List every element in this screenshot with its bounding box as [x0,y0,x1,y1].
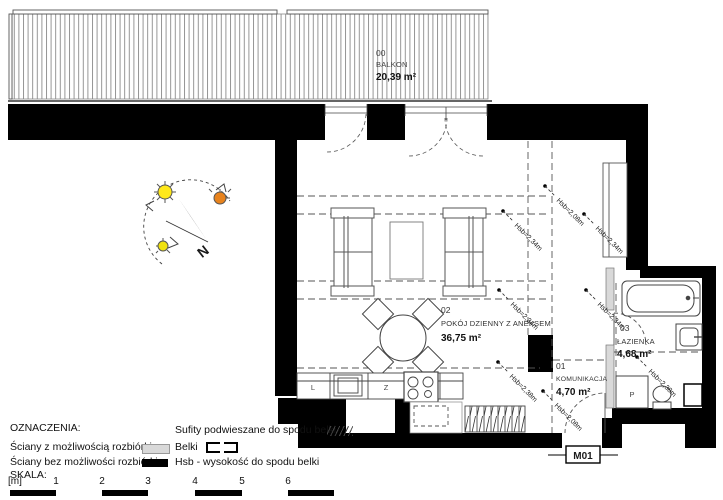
floor-plan-page: L Z P [0,0,723,500]
svg-text:Hsb=2,34m: Hsb=2,34m [513,222,544,253]
room-area: 4,70 m² [556,387,591,398]
scale-segment [10,490,56,496]
north-arrow [166,199,208,242]
sofa-right [443,208,486,296]
hsb-label: Hsb=2,34m [584,288,626,332]
hsb-label: Hsb=2,34m [501,209,543,253]
balcony-doors [325,104,487,156]
legend-wall-fixed: Ściany bez możliwości rozbiórki [10,456,158,468]
beam-symbol-right [224,442,238,453]
legend-hsb-note: Hsb - wysokość do spodu belki [175,456,319,468]
compass: N [144,180,231,264]
sun-icon-small [156,238,170,253]
bathtub [622,281,700,316]
radiator [465,406,525,432]
scale-segment [288,490,334,496]
legend-wall-removable: Ściany z możliwością rozbiórki [10,441,152,453]
dining-set [362,298,443,377]
washer-label: P [629,390,634,399]
legend-beams-label: Belki [175,441,198,453]
room-number: 01 [556,361,566,371]
scale-tick: 2 [99,476,105,487]
sink-label: Z [384,383,389,392]
removable-wall-swatch [142,444,170,454]
svg-text:Hsb=2,08m: Hsb=2,08m [553,402,584,433]
fixed-wall-swatch [142,459,168,467]
scale-tick: 5 [239,476,245,487]
coffee-table [390,222,423,279]
scale-tick: 1 [53,476,59,487]
legend-ceiling: Sufity podwieszane do spodu belki [175,424,336,436]
bath-sink [676,324,702,350]
fridge-label: L [311,383,315,392]
legend-beams: Belki [175,441,238,453]
door-swing-arc [327,113,366,152]
entry-door-arc [565,393,605,433]
door-swing-arc [445,118,483,156]
door-swing-arc [409,118,447,156]
unit-tag: M01 [548,446,618,463]
legend: OZNACZENIA: Ściany z możliwością rozbiór… [0,418,430,478]
room-area: 36,75 m² [441,333,482,344]
north-label: N [194,242,212,261]
hsb-label: Hsb=2,08m [543,184,585,228]
cooktop [404,372,438,402]
installation-shaft [684,384,702,406]
scale-tick: 4 [192,476,198,487]
beam-symbol-left [206,442,220,453]
removable-walls [606,268,614,408]
sun-icon [154,181,176,203]
ceiling-hatch-swatch [327,426,353,436]
sun-icon-orange [209,189,231,204]
dining-table [380,315,426,361]
kitchen-counter [297,372,463,402]
room-number: 00 [376,48,386,58]
sofa-left [331,208,374,296]
scale-tick: 3 [145,476,151,487]
balcony-railing [8,10,492,101]
svg-text:Hsb=2,08m: Hsb=2,08m [555,197,586,228]
room-area: 20,39 m² [376,72,417,83]
room-number: 02 [441,305,451,315]
room-name: ŁAZIENKA [617,337,655,346]
unit-label: M01 [573,451,593,462]
scale-tick: [m] [8,476,22,487]
scale-segment [195,490,242,496]
room-name: BALKON [376,60,408,69]
room-area: 4,68 m² [617,349,652,360]
room-label-hall: 01 KOMUNIKACJA 4,70 m² [556,361,608,398]
scale-tick: 6 [285,476,291,487]
column [528,335,553,372]
scale-segment [102,490,148,496]
legend-heading: OZNACZENIA: [10,422,81,434]
svg-text:Hsb=2,38m: Hsb=2,38m [508,373,539,404]
scale-bar: [m] 1 2 3 4 5 6 [8,476,348,498]
room-name: KOMUNIKACJA [556,376,608,383]
